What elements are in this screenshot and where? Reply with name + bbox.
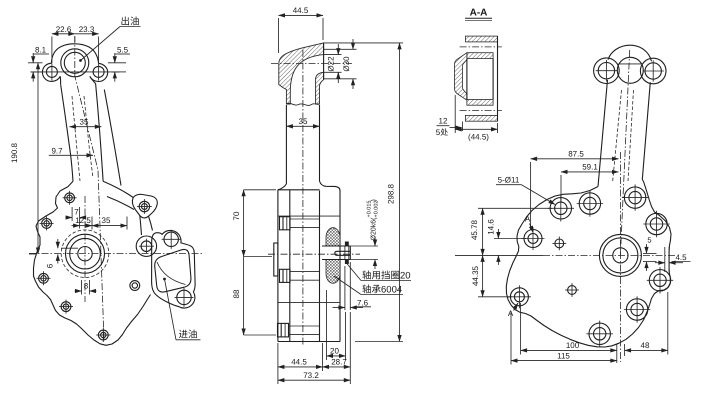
svg-text:Ø20k6(: Ø20k6( — [370, 217, 378, 241]
svg-text:7.6: 7.6 — [357, 299, 369, 308]
svg-text:A: A — [525, 215, 531, 224]
svg-text:A-A: A-A — [470, 8, 488, 19]
svg-text:70: 70 — [232, 211, 241, 220]
svg-text:5.5: 5.5 — [117, 46, 129, 55]
svg-text:44.35: 44.35 — [471, 265, 480, 286]
svg-text:22.6: 22.6 — [56, 25, 72, 34]
svg-text:5-Ø11: 5-Ø11 — [498, 176, 520, 185]
svg-text:6: 6 — [46, 263, 55, 268]
svg-text:出油: 出油 — [120, 17, 139, 28]
svg-text:Ø30: Ø30 — [342, 56, 351, 72]
svg-text:44.5: 44.5 — [293, 6, 309, 15]
svg-text:59.1: 59.1 — [582, 163, 598, 172]
svg-text:): ) — [370, 199, 378, 201]
svg-text:35: 35 — [299, 117, 308, 126]
svg-text:73.2: 73.2 — [303, 371, 319, 380]
svg-text:9.7: 9.7 — [51, 146, 63, 155]
svg-text:4.5: 4.5 — [675, 253, 687, 262]
svg-text:28.7: 28.7 — [331, 358, 347, 367]
svg-text:轴用挡圈20: 轴用挡圈20 — [362, 271, 411, 282]
svg-text:5处: 5处 — [436, 128, 448, 137]
svg-text:88: 88 — [232, 289, 241, 298]
svg-text:100: 100 — [566, 341, 580, 350]
svg-text:8: 8 — [84, 282, 89, 291]
svg-text:35: 35 — [80, 118, 89, 127]
svg-text:轴承6004: 轴承6004 — [362, 285, 402, 296]
svg-text:20: 20 — [330, 347, 339, 356]
svg-text:+0.015: +0.015 — [367, 201, 373, 218]
svg-text:23.3: 23.3 — [79, 25, 95, 34]
svg-text:12: 12 — [439, 117, 448, 126]
svg-text:45.78: 45.78 — [470, 219, 479, 240]
svg-text:12.5: 12.5 — [75, 216, 91, 225]
svg-text:进油: 进油 — [178, 330, 197, 341]
svg-text:Ø22: Ø22 — [327, 56, 336, 72]
svg-text:(44.5): (44.5) — [468, 133, 489, 142]
svg-text:8.1: 8.1 — [35, 46, 47, 55]
svg-text:5: 5 — [647, 236, 651, 245]
svg-text:298.8: 298.8 — [387, 183, 396, 204]
svg-text:190.8: 190.8 — [10, 142, 19, 163]
svg-text:87.5: 87.5 — [568, 150, 584, 159]
svg-text:48: 48 — [641, 341, 650, 350]
svg-text:115: 115 — [557, 351, 570, 360]
svg-text:+0.002: +0.002 — [374, 201, 380, 218]
svg-text:44.5: 44.5 — [291, 358, 307, 367]
svg-text:35: 35 — [102, 216, 111, 225]
svg-text:14.6: 14.6 — [487, 219, 496, 235]
